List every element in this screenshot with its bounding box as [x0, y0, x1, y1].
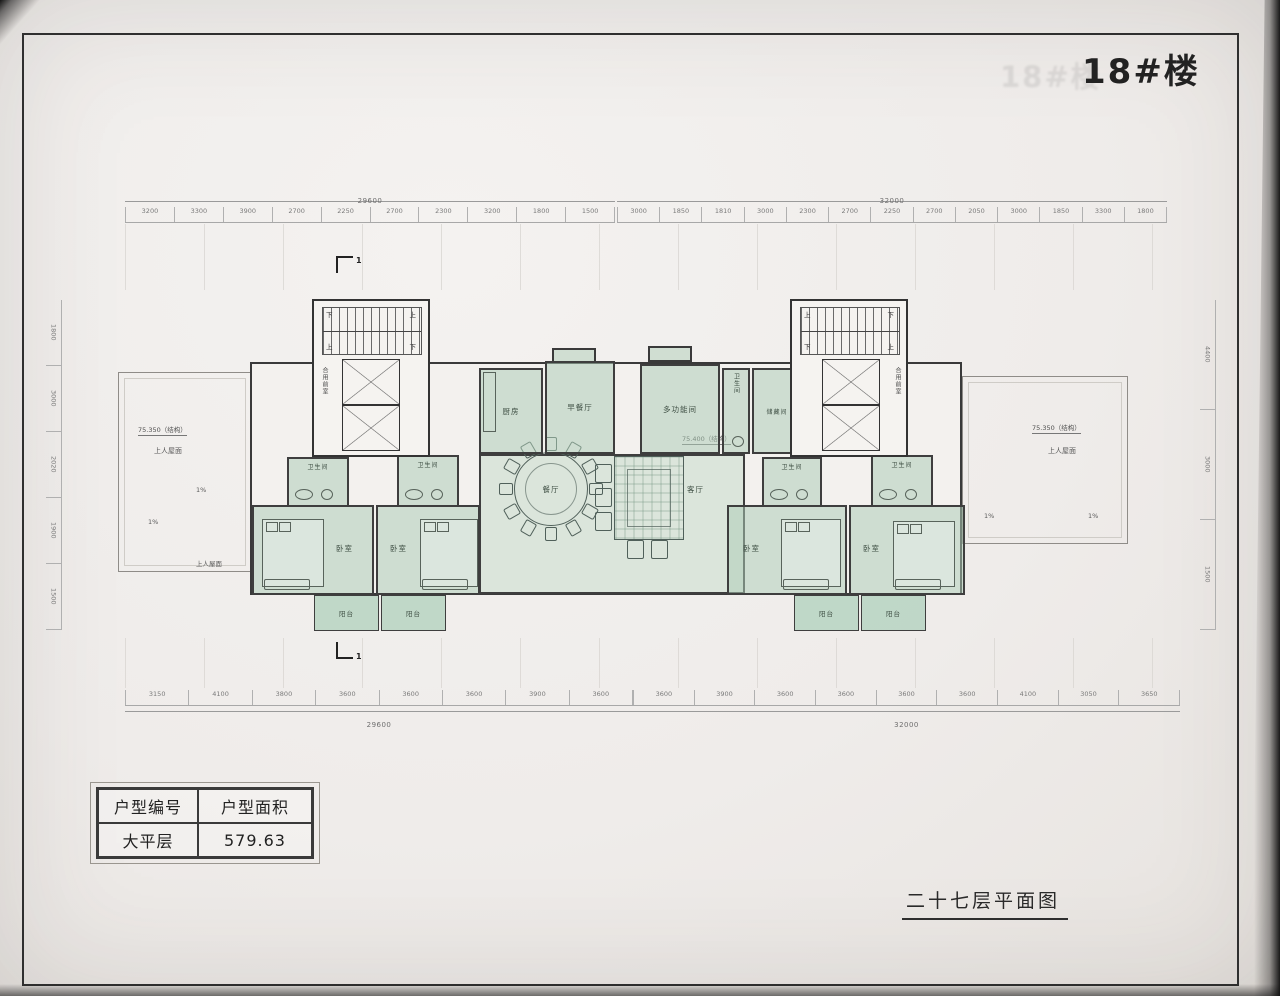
stair-down-label: 下: [410, 341, 417, 351]
service-bump-right: [648, 346, 692, 362]
slope-mark-4: 1%: [1088, 512, 1098, 520]
table-header-unit-id: 户型编号: [98, 789, 198, 823]
dim-value: 32000: [880, 197, 905, 205]
toilet-fixture: [732, 436, 744, 447]
dining-table: 餐厅: [514, 452, 588, 526]
dim-segments-bottom-right: 360039003600360036003600410030503650: [633, 690, 1180, 706]
roof-area-label-left2: 上人屋面: [196, 558, 222, 568]
dim-value: 1850: [660, 207, 702, 222]
room-label-bath: 卫生间: [732, 373, 741, 394]
bed: [262, 519, 324, 587]
room-balcony-r1: 阳台: [794, 595, 859, 631]
dim-value: 1800: [1125, 207, 1167, 222]
dim-value: 3000: [1200, 410, 1215, 520]
dim-value: 3600: [380, 690, 443, 705]
stair-up-label: 上: [326, 341, 333, 351]
bench: [264, 579, 310, 590]
dim-value: 1900: [46, 498, 61, 564]
stair-core-left: 下 上 上 下 合用前室: [312, 299, 430, 457]
bed: [420, 519, 478, 587]
room-label-living: 客厅: [687, 484, 704, 495]
dim-value: 3000: [745, 207, 787, 222]
toilet-fixture: [905, 489, 917, 500]
slope-mark-2: 1%: [148, 518, 158, 526]
room-label-balcony: 阳台: [819, 608, 834, 618]
bench: [422, 579, 468, 590]
dim-value: 29600: [358, 197, 383, 205]
shared-lobby-label: 合用前室: [320, 367, 329, 395]
elevator-shaft: [822, 359, 880, 405]
room-bedroom-r2: 卧室: [849, 505, 965, 595]
room-balcony-l1: 阳台: [314, 595, 379, 631]
dim-segments-bottom-left: 31504100380036003600360039003600: [125, 690, 633, 706]
stair-up-label: 上: [804, 309, 811, 319]
dim-value: 3600: [755, 690, 816, 705]
dim-overall-top-left: 29600: [125, 191, 615, 202]
chair: [545, 527, 557, 541]
stair-flight: [800, 307, 900, 355]
dim-value: 1800: [46, 300, 61, 366]
toilet-fixture: [321, 489, 333, 500]
elevation-roof-left: 75.350（结构）: [138, 424, 187, 436]
section-number: 1: [356, 256, 362, 265]
room-breakfast: 早餐厅: [545, 361, 615, 454]
sofa-seat: [595, 512, 612, 531]
witness-lines-top: [125, 224, 1167, 290]
dim-overall-bottom-left: 29600: [125, 711, 633, 722]
room-bedroom-r1: 卧室: [727, 505, 847, 595]
sofa-seat: [651, 540, 668, 559]
tub-fixture: [879, 489, 897, 500]
dim-value: 3900: [506, 690, 569, 705]
dim-segments-top-left: 3200330039002700225027002300320018001500: [125, 207, 615, 223]
stair-up-label: 上: [888, 341, 895, 351]
stair-up-label: 上: [410, 309, 417, 319]
roof-area-label-left: 上人屋面: [154, 446, 182, 456]
dim-value: 1800: [517, 207, 566, 222]
dim-segments-top-right: 3000185018103000230027002250270020503000…: [617, 207, 1167, 223]
plan-caption: 二十七层平面图: [902, 886, 1068, 920]
room-bedroom-l2: 卧室: [376, 505, 480, 595]
room-bath-l1: 卫生间: [287, 457, 349, 507]
room-label-bath: 卫生间: [891, 460, 912, 469]
room-balcony-r2: 阳台: [861, 595, 926, 631]
elevator-shaft: [342, 405, 400, 451]
dim-value: 2700: [914, 207, 956, 222]
room-bath-r2: 卫生间: [871, 455, 933, 507]
room-label-bath: 卫生间: [781, 462, 802, 471]
bench: [783, 579, 829, 590]
building-title: 18#楼: [1082, 44, 1200, 93]
photo-corner-shadow: [0, 0, 96, 66]
witness-lines-bottom: [125, 638, 1177, 688]
room-label-bedroom: 卧室: [743, 543, 760, 554]
room-label-multi: 多功能间: [663, 404, 697, 415]
photo-bottom-edge-shadow: [0, 984, 1280, 996]
dim-value: 2700: [829, 207, 871, 222]
dim-value: 29600: [367, 721, 392, 729]
dim-value: 3000: [998, 207, 1040, 222]
dim-value: 1500: [566, 207, 615, 222]
dim-value: 3050: [1059, 690, 1120, 705]
room-label-storage: 储藏间: [766, 407, 787, 416]
stair-flight: [322, 307, 422, 355]
room-label-breakfast: 早餐厅: [567, 402, 593, 413]
dim-segments-right-side: 440030001500: [1200, 300, 1216, 630]
dim-value: 2050: [956, 207, 998, 222]
dim-value: 3800: [253, 690, 316, 705]
dim-value: 1810: [702, 207, 744, 222]
room-label-balcony: 阳台: [886, 608, 901, 618]
section-number: 1: [356, 652, 362, 661]
dim-value: 2020: [46, 432, 61, 498]
kitchen-counter: [483, 372, 496, 432]
dim-overall-top-right: 32000: [617, 191, 1167, 202]
dim-value: 32000: [894, 721, 919, 729]
toilet-fixture: [431, 489, 443, 500]
dim-value: 3200: [468, 207, 517, 222]
dim-value: 3000: [46, 366, 61, 432]
dim-value: 3600: [570, 690, 633, 705]
room-bath-l2: 卫生间: [397, 455, 459, 507]
table-cell-unit-id: 大平层: [98, 823, 198, 857]
dim-value: 1850: [1040, 207, 1082, 222]
room-balcony-l2: 阳台: [381, 595, 446, 631]
room-label-balcony: 阳台: [406, 608, 421, 618]
tub-fixture: [295, 489, 313, 500]
dim-segments-left-side: 18003000202019001500: [46, 300, 62, 630]
room-bath-center: 卫生间: [722, 368, 750, 454]
stair-down-label: 下: [888, 309, 895, 319]
stair-core-right: 上 下 下 上 合用前室: [790, 299, 908, 457]
dim-value: 3600: [937, 690, 998, 705]
slope-mark-3: 1%: [984, 512, 994, 520]
room-bedroom-l1: 卧室: [252, 505, 374, 595]
elevator-shaft: [342, 359, 400, 405]
tub-fixture: [405, 489, 423, 500]
dim-value: 4100: [189, 690, 252, 705]
dim-overall-bottom-right: 32000: [633, 711, 1180, 722]
dim-value: 3900: [224, 207, 273, 222]
dim-value: 3600: [816, 690, 877, 705]
bench: [895, 579, 941, 590]
dim-value: 3150: [125, 690, 189, 705]
room-label-balcony: 阳台: [339, 608, 354, 618]
room-label-bath: 卫生间: [417, 460, 438, 469]
tub-fixture: [770, 489, 788, 500]
sofa-seat: [595, 488, 612, 507]
dim-value: 2300: [787, 207, 829, 222]
dim-value: 3000: [617, 207, 660, 222]
table-cell-unit-area: 579.63: [198, 823, 312, 857]
room-bath-r1: 卫生间: [762, 457, 822, 507]
room-label-bedroom: 卧室: [863, 543, 880, 554]
elevator-shaft: [822, 405, 880, 451]
shared-lobby-label: 合用前室: [893, 367, 902, 395]
room-hall: 餐厅 客厅: [479, 454, 745, 594]
toilet-fixture: [796, 489, 808, 500]
room-label-bath: 卫生间: [307, 462, 328, 471]
dim-value: 3650: [1119, 690, 1180, 705]
living-rug: [614, 456, 684, 540]
room-label-kitchen: 厨房: [503, 406, 520, 417]
bed: [893, 521, 955, 587]
dim-value: 4400: [1200, 300, 1215, 410]
slope-mark-1: 1%: [196, 486, 206, 494]
dim-value: 1500: [46, 564, 61, 630]
dim-value: 2700: [371, 207, 420, 222]
section-mark-top: 1: [336, 256, 353, 273]
room-kitchen: 厨房: [479, 368, 543, 454]
section-mark-bottom: 1: [336, 642, 353, 659]
dim-value: 3300: [175, 207, 224, 222]
roof-terrace-left: [118, 372, 252, 572]
chair: [499, 483, 513, 495]
drawing-sheet: 29600 32000 3200330039002700225027002300…: [0, 0, 1280, 996]
dim-value: 2700: [273, 207, 322, 222]
dim-value: 3600: [877, 690, 938, 705]
room-label-bedroom: 卧室: [390, 543, 407, 554]
dim-value: 3600: [443, 690, 506, 705]
dim-value: 3300: [1083, 207, 1125, 222]
sofa-seat: [595, 464, 612, 483]
sofa-seat: [627, 540, 644, 559]
unit-table: 户型编号 户型面积 大平层 579.63: [90, 782, 320, 864]
dim-value: 4100: [998, 690, 1059, 705]
dim-value: 2250: [322, 207, 371, 222]
dim-value: 2300: [419, 207, 468, 222]
unit-table-grid: 户型编号 户型面积 大平层 579.63: [96, 787, 314, 859]
elevation-roof-right: 75.350（结构）: [1032, 422, 1081, 434]
room-label-dining: 餐厅: [543, 484, 560, 495]
dim-value: 3600: [633, 690, 695, 705]
room-label-bedroom: 卧室: [336, 543, 353, 554]
photo-background: 29600 32000 3200330039002700225027002300…: [0, 0, 1280, 996]
stair-down-label: 下: [804, 341, 811, 351]
stair-down-label: 下: [326, 309, 333, 319]
table-header-unit-area: 户型面积: [198, 789, 312, 823]
dim-value: 1500: [1200, 520, 1215, 630]
dim-value: 3900: [695, 690, 756, 705]
dim-value: 3600: [316, 690, 379, 705]
dim-value: 3200: [125, 207, 175, 222]
room-multi: 多功能间: [640, 364, 720, 454]
dim-value: 2250: [871, 207, 913, 222]
bed: [781, 519, 841, 587]
roof-area-label-right: 上人屋面: [1048, 446, 1076, 456]
